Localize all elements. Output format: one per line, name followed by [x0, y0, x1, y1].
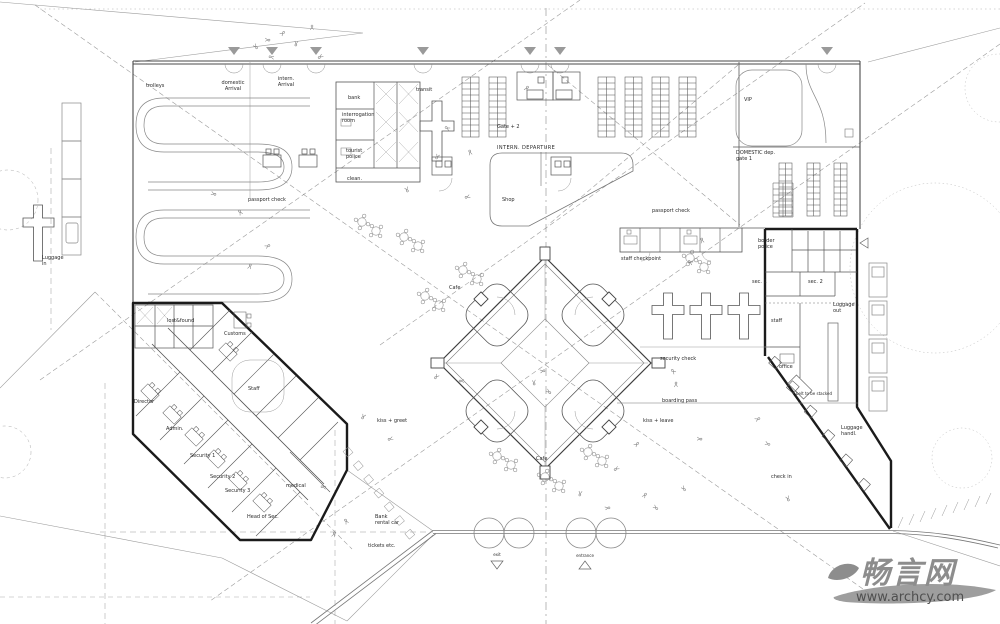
label-office: office — [779, 364, 793, 370]
watermark-url: www.archcy.com — [856, 590, 964, 605]
label-entrance: entrance — [576, 553, 594, 558]
label-shop: Shop — [502, 197, 515, 203]
label-head-of-sec: Head of Sec. — [247, 514, 279, 520]
label-gate-plus-2: Gate + 2 — [497, 124, 520, 130]
cross-columns — [652, 293, 760, 339]
label-passport-check-left: passport check — [248, 197, 286, 203]
label-luggage-handl: Luggage handl. — [841, 425, 863, 438]
watermark-logo-text: 畅言网 — [860, 548, 956, 592]
label-security-3: Security 3 — [225, 488, 250, 494]
label-bank: bank — [348, 95, 360, 101]
label-luggage-in: Luggage in — [42, 255, 64, 268]
exit-arrow-icon — [491, 561, 503, 569]
watermark: 畅言网 www.archcy.com — [826, 548, 1000, 620]
label-vip: VIP — [744, 97, 752, 103]
transit-cross-column — [420, 101, 454, 161]
label-staff-right: staff — [771, 318, 782, 324]
label-security-2: Security 2 — [210, 474, 235, 480]
label-staff-checkpoint: staff checkpoint — [621, 256, 661, 262]
security-gates — [517, 72, 580, 100]
luggage-cross-column — [23, 205, 54, 261]
label-check-in: check in — [771, 474, 792, 480]
label-tickets-etc: tickets etc. — [368, 543, 395, 549]
floorplan-page: trolleys domestic Arrival intern. Arriva… — [0, 0, 1000, 624]
label-interrogation-room: interrogation room — [342, 112, 374, 125]
label-transit: transit — [416, 87, 432, 93]
label-security-1: Security 1 — [190, 453, 215, 459]
label-cafe-lower: Cafe — [536, 456, 547, 462]
label-kiss-greet: kiss + greet — [377, 418, 407, 424]
label-exit: exit — [493, 552, 500, 557]
label-security-check: security check — [660, 356, 696, 362]
label-intern-departure: INTERN. DEPARTURE — [497, 145, 555, 151]
label-domestic-arrival: domestic Arrival — [222, 80, 245, 93]
label-trolleys: trolleys — [146, 83, 164, 89]
label-sec-1: sec. 1 — [752, 279, 767, 285]
label-domestic-dep-gate1: DOMESTIC dep. gate 1 — [736, 150, 775, 163]
label-sec-2: sec. 2 — [808, 279, 823, 285]
label-lost-found: lost&found — [167, 318, 194, 324]
label-clean: clean. — [347, 176, 362, 182]
entrance-arrow-icon — [579, 561, 591, 569]
label-medical: medical — [286, 483, 306, 489]
vip-area — [736, 64, 853, 146]
label-cafe-upper: Cafe — [449, 285, 460, 291]
trees — [474, 518, 626, 548]
label-admin: Admin. — [166, 426, 184, 432]
label-kiss-leave: kiss + leave — [643, 418, 673, 424]
left-building — [133, 303, 347, 540]
shop-outline — [490, 153, 633, 226]
people-figures — [211, 25, 791, 537]
label-staff-left: Staff — [248, 386, 260, 392]
label-belt-stacked: belt to be stacked — [796, 391, 832, 396]
label-intern-arrival: intern. Arrival — [278, 76, 294, 89]
label-tourist-police: tourist police — [346, 148, 362, 161]
label-border-police: border police — [758, 238, 775, 251]
hall-detail-lines — [23, 183, 858, 403]
direction-triangles — [228, 47, 868, 569]
label-customs: Customs — [224, 331, 246, 337]
label-luggage-out: Luggage out — [833, 302, 855, 315]
label-bank-rental-car: Bank rental car — [375, 514, 399, 527]
label-boarding-pass: boarding pass — [662, 398, 697, 404]
side-door-arrow-icon — [860, 238, 868, 248]
label-director: Director — [134, 399, 154, 405]
stairs — [773, 183, 793, 217]
door-arrow-icons — [228, 47, 833, 55]
label-passport-check-right: passport check — [652, 208, 690, 214]
passport-desks — [263, 149, 571, 191]
